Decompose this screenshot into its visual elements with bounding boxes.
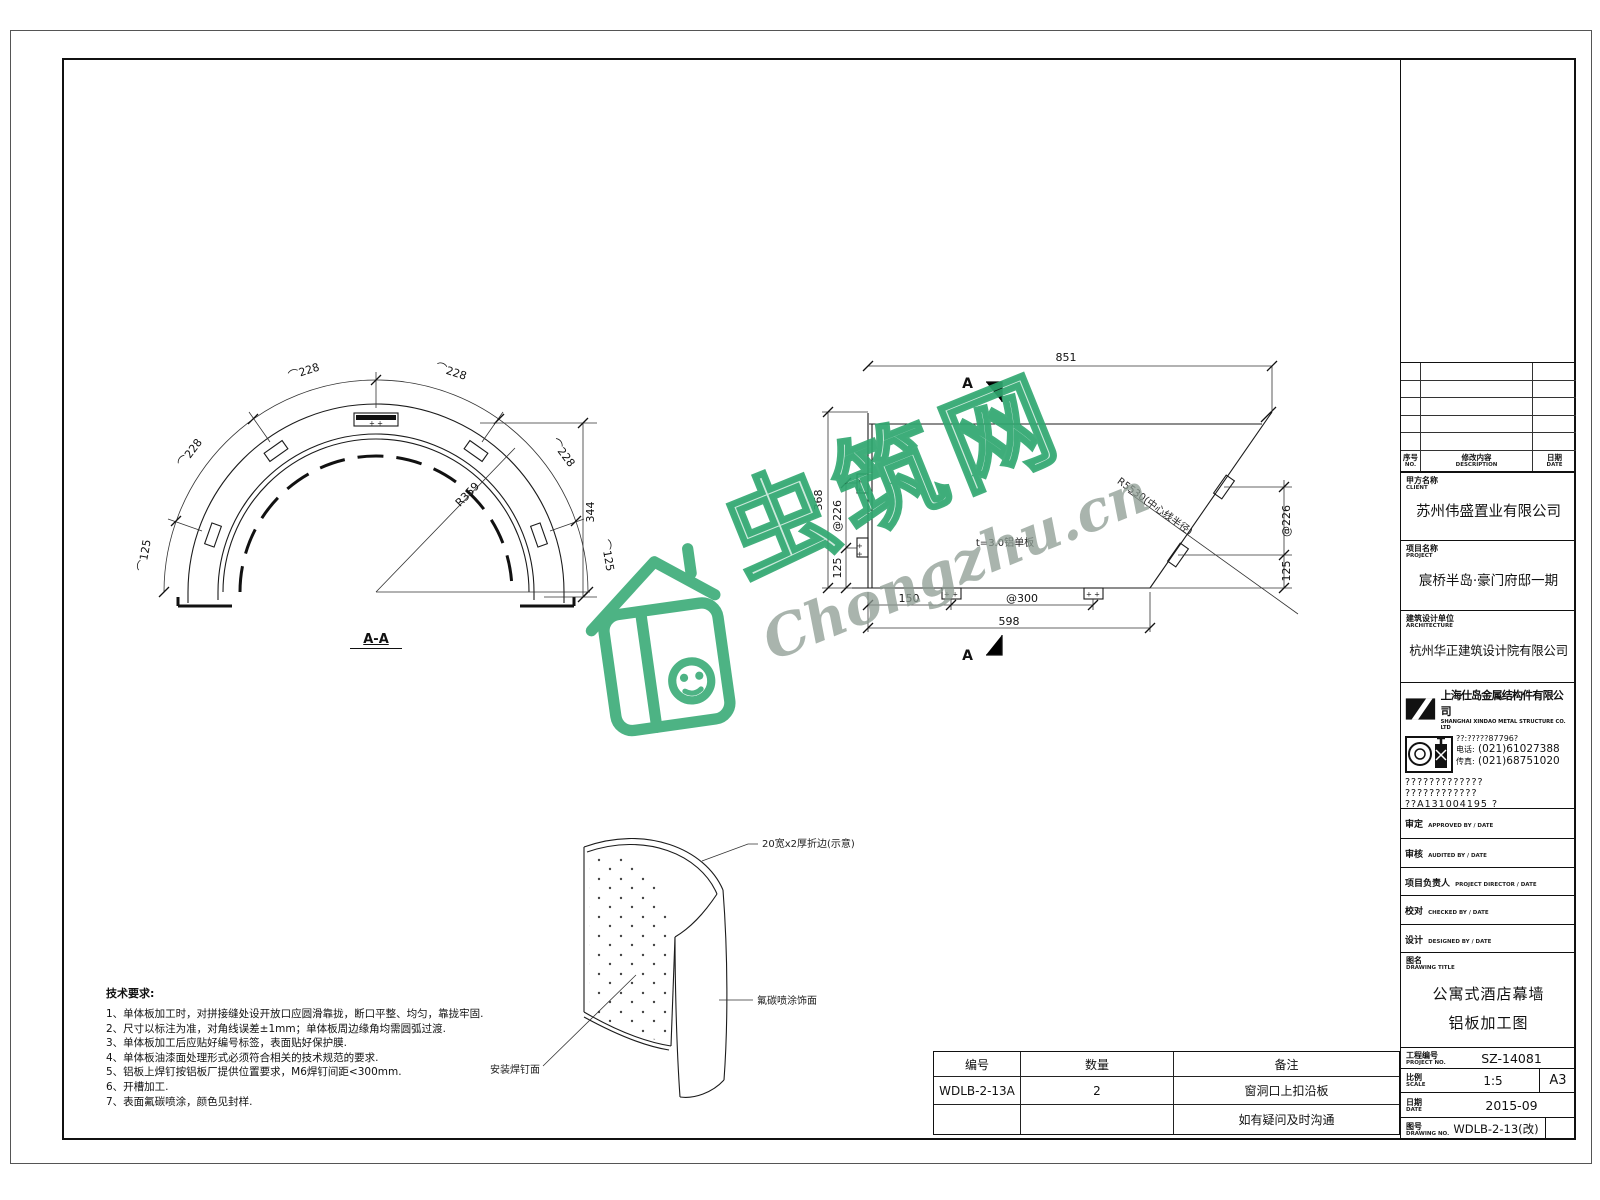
- fax-label: 传真:: [1456, 757, 1475, 766]
- drawing-no-value: WDLB-2-13(改): [1452, 1121, 1540, 1137]
- elev-clip-plus: + +: [944, 591, 958, 599]
- drawing-no-extra-cell: [1545, 1118, 1576, 1140]
- elev-panel-note: t=3.0铝单板: [976, 536, 1034, 549]
- elev-dim-226-right: @226: [1280, 505, 1293, 537]
- scale-label-en: SCALE: [1406, 1082, 1452, 1088]
- parts-cell-remark: 窗洞口上扣沿板: [1174, 1077, 1399, 1105]
- note-item: 5、铝板上焊钉按铝板厂提供位置要求，M6焊钉间距<300mm.: [106, 1065, 436, 1080]
- drawing-title-label: 图名: [1406, 956, 1571, 965]
- project-section: 项目名称 PROJECT 宸桥半岛·豪门府邸一期: [1401, 540, 1576, 610]
- title-block: 序号 NO. 修改内容 DESCRIPTION 日期 DATE 甲方名称 CLI…: [1400, 58, 1576, 1140]
- elev-dim-300: @300: [1006, 592, 1038, 605]
- date-label-en: DATE: [1406, 1107, 1452, 1113]
- section-marker-a-top: A: [962, 376, 973, 392]
- drawing-no-row: 图号 DRAWING NO. WDLB-2-13(改): [1401, 1117, 1576, 1140]
- drawing-no-label: 图号: [1406, 1122, 1452, 1131]
- project-label: 项目名称: [1406, 544, 1571, 553]
- elev-dim-851: 851: [1056, 351, 1077, 364]
- parts-table: 编号 数量 备注 WDLB-2-13A 2 窗洞口上扣沿板 如有疑问及时沟通: [933, 1051, 1400, 1135]
- arch-dim-125-left: ⌒125: [135, 539, 153, 573]
- project-label-en: PROJECT: [1406, 553, 1571, 559]
- client-label-en: CLIENT: [1406, 485, 1571, 491]
- parts-header-qty: 数量: [1021, 1052, 1174, 1077]
- section-title-aa: A-A: [350, 632, 402, 649]
- arch-dim-228-topleft: ⌒228: [287, 361, 321, 383]
- project-no-value: SZ-14081: [1452, 1051, 1571, 1066]
- arch-dim-height: 344: [584, 502, 597, 523]
- date-value: 2015-09: [1452, 1098, 1571, 1113]
- sign-project-director: 项目负责人 PROJECT DIRECTOR / DATE: [1401, 867, 1576, 896]
- architecture-label: 建筑设计单位: [1406, 614, 1571, 623]
- revision-col-description: 修改内容 DESCRIPTION: [1421, 451, 1533, 471]
- arch-clip-plus: + +: [369, 420, 383, 428]
- elev-dim-226-left: @226: [831, 500, 844, 532]
- parts-header-remark: 备注: [1174, 1052, 1399, 1077]
- project-no-label: 工程编号: [1406, 1051, 1452, 1060]
- iso-bottom-label: 安装焊钉面: [490, 1063, 540, 1076]
- scale-value: 1:5: [1452, 1074, 1534, 1088]
- company-seal-icon: [1405, 734, 1453, 774]
- architecture-value: 杭州华正建筑设计院有限公司: [1406, 640, 1571, 659]
- elev-clip-plus: + +: [856, 479, 864, 493]
- architecture-section: 建筑设计单位 ARCHITECTURE 杭州华正建筑设计院有限公司: [1401, 610, 1576, 682]
- project-no-row: 工程编号 PROJECT NO. SZ-14081: [1401, 1047, 1576, 1068]
- parts-cell-id: WDLB-2-13A: [934, 1077, 1021, 1105]
- note-item: 7、表面氟碳喷涂，颜色见封样.: [106, 1095, 436, 1110]
- company-logo: [1405, 697, 1438, 721]
- sign-approved: 审定 APPROVED BY / DATE: [1401, 809, 1576, 838]
- parts-cell-note: 如有疑问及时沟通: [1174, 1105, 1399, 1134]
- revision-col-no: 序号 NO.: [1401, 451, 1421, 471]
- phone-label: 电话:: [1456, 745, 1475, 754]
- elev-dim-125-right: 125: [1280, 561, 1293, 582]
- iso-top-label: 20宽x2厚折边(示意): [762, 837, 855, 850]
- architecture-label-en: ARCHITECTURE: [1406, 623, 1571, 629]
- revision-table: 序号 NO. 修改内容 DESCRIPTION 日期 DATE: [1401, 362, 1576, 472]
- note-item: 4、单体板油漆面处理形式必须符合相关的技术规范的要求.: [106, 1051, 436, 1066]
- drawing-title-line1: 公寓式酒店幕墙: [1406, 983, 1571, 1004]
- arch-section-view: + + ⌒228 ⌒228 ⌒228 ⌒228 ⌒125 ⌒125 R359 3…: [135, 361, 616, 606]
- scale-row: 比例 SCALE 1:5 A3: [1401, 1068, 1576, 1092]
- parts-cell-empty: [1021, 1105, 1174, 1134]
- sign-checked: 校对 CHECKED BY / DATE: [1401, 895, 1576, 924]
- arch-dim-125-right: ⌒125: [598, 539, 616, 573]
- notes-title: 技术要求:: [106, 985, 436, 1001]
- drawing-no-label-en: DRAWING NO.: [1406, 1131, 1452, 1137]
- parts-cell-empty: [934, 1105, 1021, 1134]
- project-value: 宸桥半岛·豪门府邸一期: [1406, 569, 1571, 589]
- arch-dim-228-left: ⌒228: [175, 436, 205, 469]
- elev-radius-note: R5530(中心线半径): [1115, 474, 1196, 538]
- date-row: 日期 DATE 2015-09: [1401, 1092, 1576, 1117]
- sheet-size: A3: [1539, 1069, 1576, 1092]
- iso-right-label: 氟碳喷涂饰面: [757, 994, 817, 1007]
- manufacturer-section: 上海仕岛金属结构件有限公司 SHANGHAI XINDAO METAL STRU…: [1401, 682, 1576, 808]
- date-label: 日期: [1406, 1098, 1452, 1107]
- note-item: 6、开槽加工.: [106, 1080, 436, 1095]
- company-contact-1: ??:?????87796?: [1456, 734, 1572, 743]
- client-section: 甲方名称 CLIENT 苏州伟盛置业有限公司: [1401, 472, 1576, 540]
- project-no-label-en: PROJECT NO.: [1406, 1060, 1452, 1066]
- sign-audited: 审核 AUDITED BY / DATE: [1401, 838, 1576, 867]
- note-item: 2、尺寸以标注为准，对角线误差±1mm；单体板周边缘角均需圆弧过渡.: [106, 1022, 436, 1037]
- sign-designed: 设计 DESIGNED BY / DATE: [1401, 924, 1576, 953]
- technical-notes: 技术要求: 1、单体板加工时，对拼接缝处设开放口应圆滑靠拢，断口平整、均匀，靠拢…: [106, 985, 436, 1109]
- revision-col-date: 日期 DATE: [1533, 451, 1576, 471]
- elev-clip-plus: + +: [856, 543, 864, 557]
- drawing-title-line2: 铝板加工图: [1406, 1012, 1571, 1033]
- signature-rows: 审定 APPROVED BY / DATE 审核 AUDITED BY / DA…: [1401, 808, 1576, 952]
- elev-dim-150: 150: [899, 592, 920, 605]
- elev-dim-368: 368: [812, 490, 825, 511]
- company-extra-2: ????????????: [1405, 788, 1572, 799]
- client-value: 苏州伟盛置业有限公司: [1406, 500, 1571, 521]
- client-label: 甲方名称: [1406, 476, 1571, 485]
- isometric-view: 20宽x2厚折边(示意) 氟碳喷涂饰面 安装焊钉面: [490, 837, 855, 1097]
- phone-number: (021)61027388: [1478, 743, 1560, 755]
- scale-label: 比例: [1406, 1073, 1452, 1082]
- section-marker-a-bottom: A: [962, 648, 973, 664]
- elev-dim-125-left: 125: [831, 558, 844, 579]
- company-name: 上海仕岛金属结构件有限公司: [1441, 687, 1572, 719]
- elevation-view: + + + + + + + + A A 851 368 @226 125 @22…: [812, 351, 1298, 664]
- company-extra-1: ?????????????: [1405, 777, 1572, 788]
- parts-cell-qty: 2: [1021, 1077, 1174, 1105]
- arch-dim-radius: R359: [453, 480, 482, 510]
- arch-dim-228-right: ⌒228: [548, 436, 578, 469]
- parts-header-id: 编号: [934, 1052, 1021, 1077]
- elev-dim-598: 598: [999, 615, 1020, 628]
- note-item: 1、单体板加工时，对拼接缝处设开放口应圆滑靠拢，断口平整、均匀，靠拢牢固.: [106, 1007, 436, 1022]
- drawing-title-label-en: DRAWING TITLE: [1406, 965, 1571, 971]
- note-item: 3、单体板加工后应贴好编号标签，表面贴好保护膜.: [106, 1036, 436, 1051]
- elev-clip-plus: + +: [1086, 591, 1100, 599]
- company-name-en: SHANGHAI XINDAO METAL STRUCTURE CO. LTD: [1441, 719, 1572, 731]
- fax-number: (021)68751020: [1478, 755, 1560, 767]
- drawing-title-section: 图名 DRAWING TITLE 公寓式酒店幕墙 铝板加工图: [1401, 952, 1576, 1047]
- arch-dim-228-topright: ⌒228: [434, 361, 468, 383]
